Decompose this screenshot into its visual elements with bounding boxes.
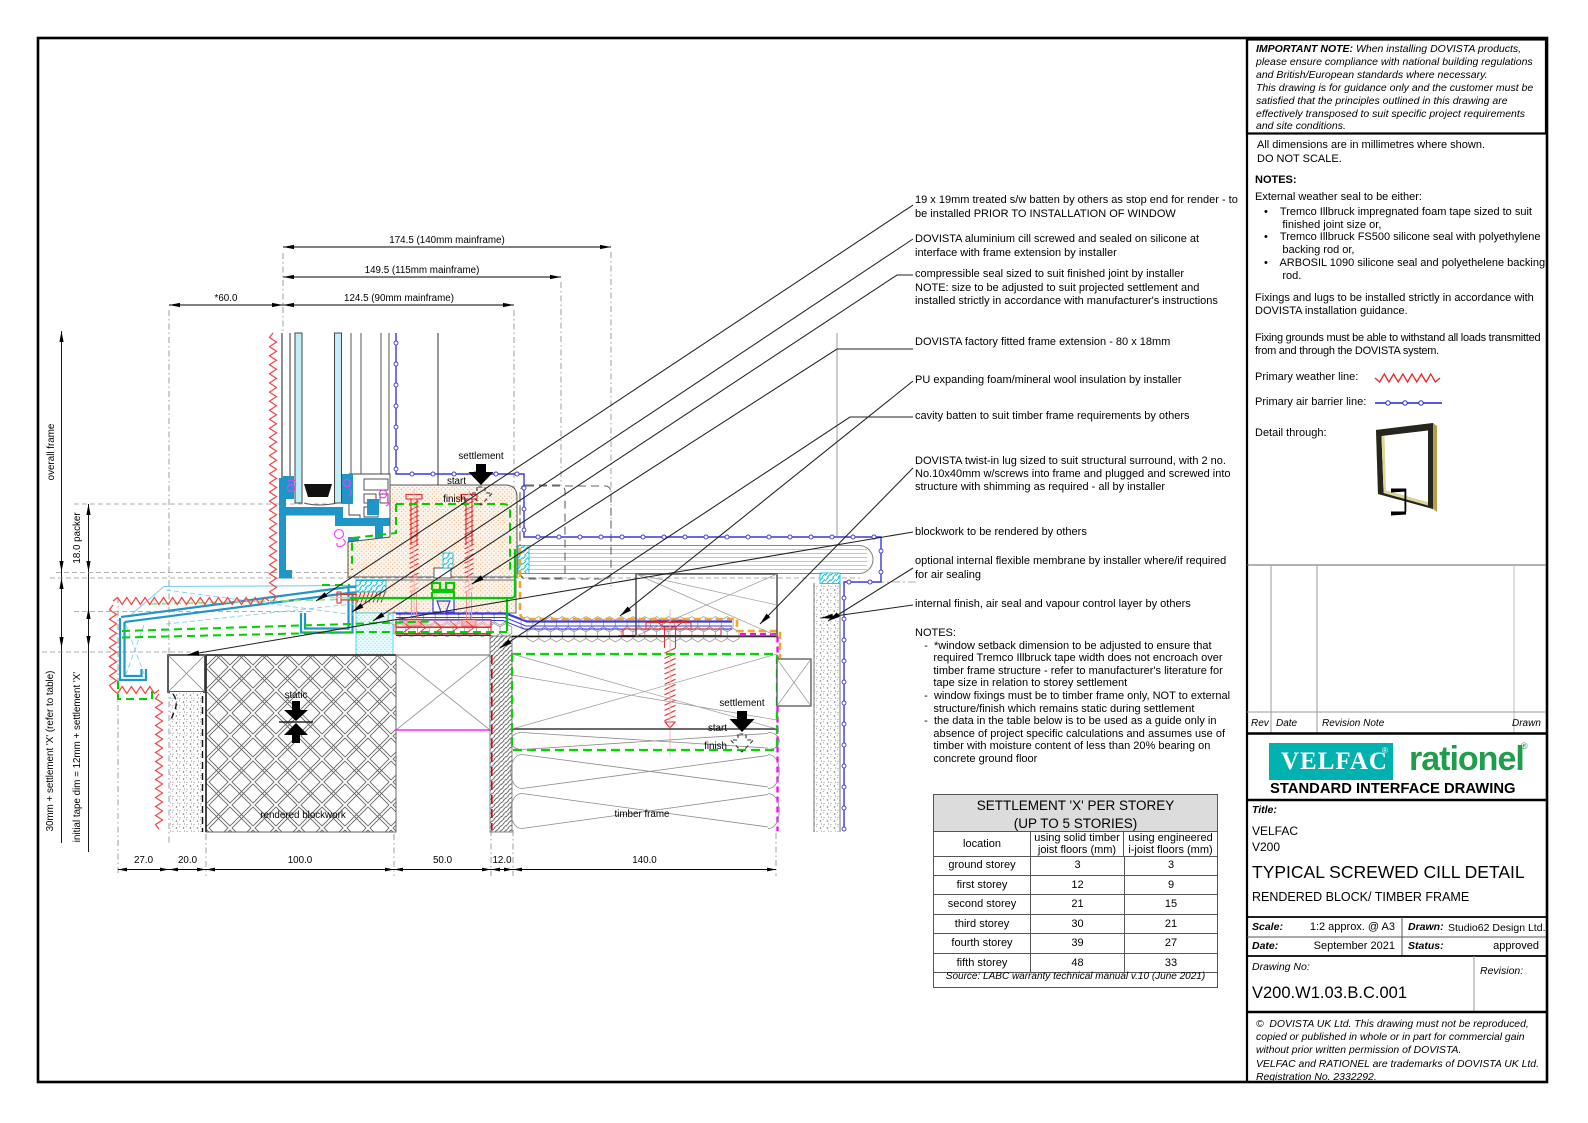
svg-text:149.5 (115mm mainframe): 149.5 (115mm mainframe) xyxy=(365,265,480,276)
svg-text:initial tape dim = 12mm + sett: initial tape dim = 12mm + settlement 'X' xyxy=(72,672,83,842)
svg-text:20.0: 20.0 xyxy=(178,855,198,866)
svg-text:12.0: 12.0 xyxy=(492,855,512,866)
svg-text:settlement: settlement xyxy=(719,698,764,709)
svg-text:100.0: 100.0 xyxy=(288,855,313,866)
svg-text:overall frame: overall frame xyxy=(46,423,57,480)
svg-text:timber frame: timber frame xyxy=(615,809,671,820)
svg-text:27.0: 27.0 xyxy=(134,855,154,866)
svg-text:*60.0: *60.0 xyxy=(215,293,238,304)
svg-text:140.0: 140.0 xyxy=(632,855,657,866)
svg-text:start: start xyxy=(708,723,727,734)
svg-text:174.5 (140mm mainframe): 174.5 (140mm mainframe) xyxy=(389,235,504,246)
svg-text:settlement: settlement xyxy=(458,451,503,462)
svg-text:50.0: 50.0 xyxy=(433,855,453,866)
svg-text:rendered blockwork: rendered blockwork xyxy=(260,810,346,821)
svg-text:124.5 (90mm mainframe): 124.5 (90mm mainframe) xyxy=(344,293,454,304)
svg-text:start: start xyxy=(447,476,466,487)
svg-text:finish: finish xyxy=(704,741,727,752)
svg-text:18.0 packer: 18.0 packer xyxy=(72,512,83,564)
svg-text:static: static xyxy=(285,690,308,701)
svg-text:30mm + settlement 'X' (refer t: 30mm + settlement 'X' (refer to table) xyxy=(45,671,56,832)
